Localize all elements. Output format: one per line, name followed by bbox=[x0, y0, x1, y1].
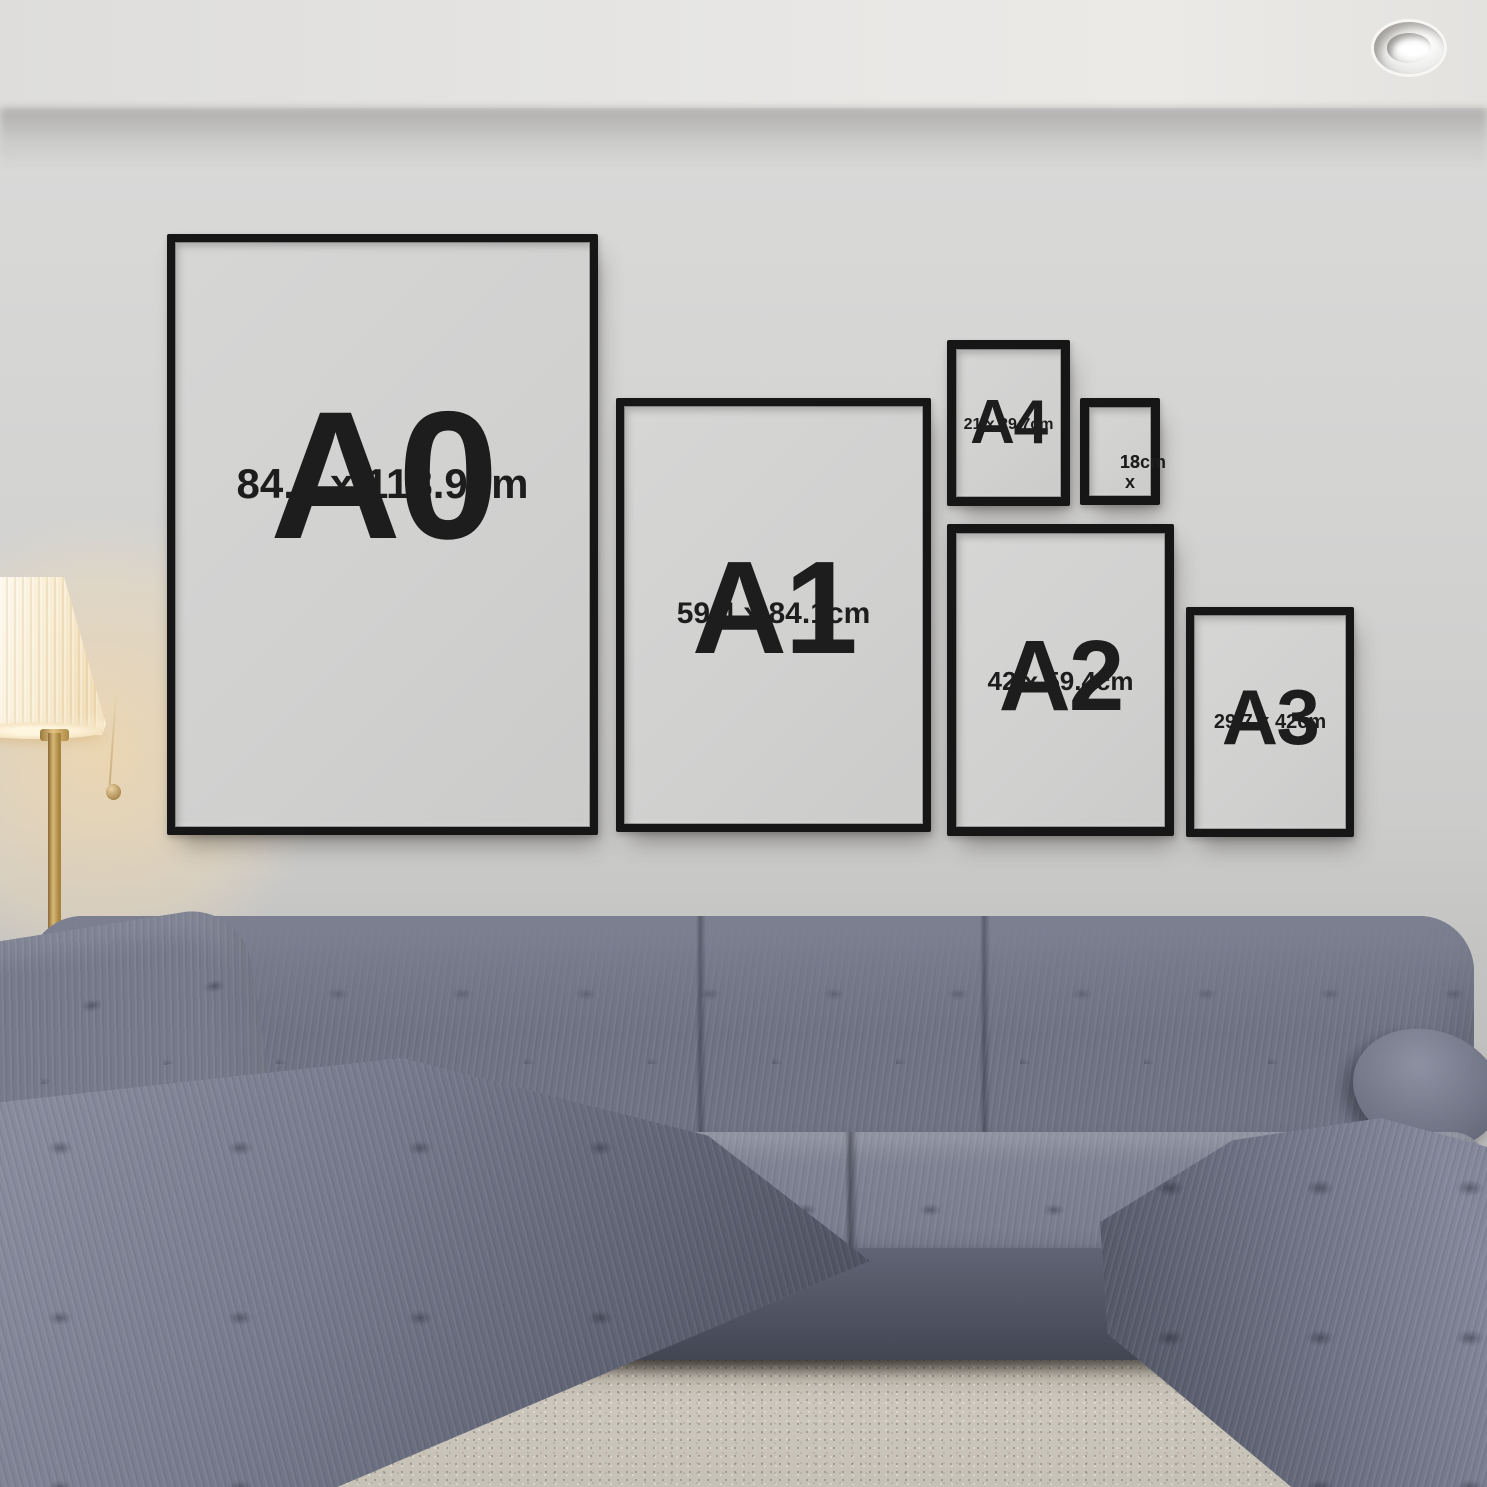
frame-a0: A0 84.1 x 118.9cm bbox=[167, 234, 598, 835]
poster-size-dimensions: 29.7 x 42cm bbox=[1214, 711, 1326, 734]
frame-13x18: 13 x 18cm bbox=[1080, 398, 1160, 505]
poster-size-dimensions: 59.4 x 84.1cm bbox=[677, 597, 871, 631]
poster-size-line2: 18cm bbox=[1120, 452, 1166, 473]
poster-size-dimensions: 21 x 29.7cm bbox=[964, 416, 1054, 434]
ceiling bbox=[0, 0, 1487, 108]
frame-a4: A4 21 x 29.7cm bbox=[947, 340, 1070, 506]
poster-size-dimensions: 84.1 x 118.9cm bbox=[237, 460, 529, 508]
frame-a3-mat: A3 29.7 x 42cm bbox=[1194, 615, 1346, 829]
frame-a1: A1 59.4 x 84.1cm bbox=[616, 398, 931, 832]
frame-a4-mat: A4 21 x 29.7cm bbox=[956, 349, 1061, 497]
frame-a1-mat: A1 59.4 x 84.1cm bbox=[624, 406, 923, 824]
frame-a2-mat: A2 42 x 59.4cm bbox=[956, 533, 1165, 827]
living-room-scene: A0 84.1 x 118.9cm A1 59.4 x 84.1cm A4 21… bbox=[0, 0, 1487, 1487]
frame-a0-mat: A0 84.1 x 118.9cm bbox=[175, 242, 590, 827]
frame-13x18-mat: 13 x 18cm bbox=[1089, 407, 1151, 496]
recessed-ceiling-light bbox=[1374, 22, 1444, 74]
frame-a3: A3 29.7 x 42cm bbox=[1186, 607, 1354, 837]
ceiling-wall-shadow bbox=[0, 108, 1487, 170]
lamp-pull-chain-ball bbox=[106, 784, 121, 800]
frame-a2: A2 42 x 59.4cm bbox=[947, 524, 1174, 836]
poster-size-dimensions: 42 x 59.4cm bbox=[987, 666, 1133, 697]
